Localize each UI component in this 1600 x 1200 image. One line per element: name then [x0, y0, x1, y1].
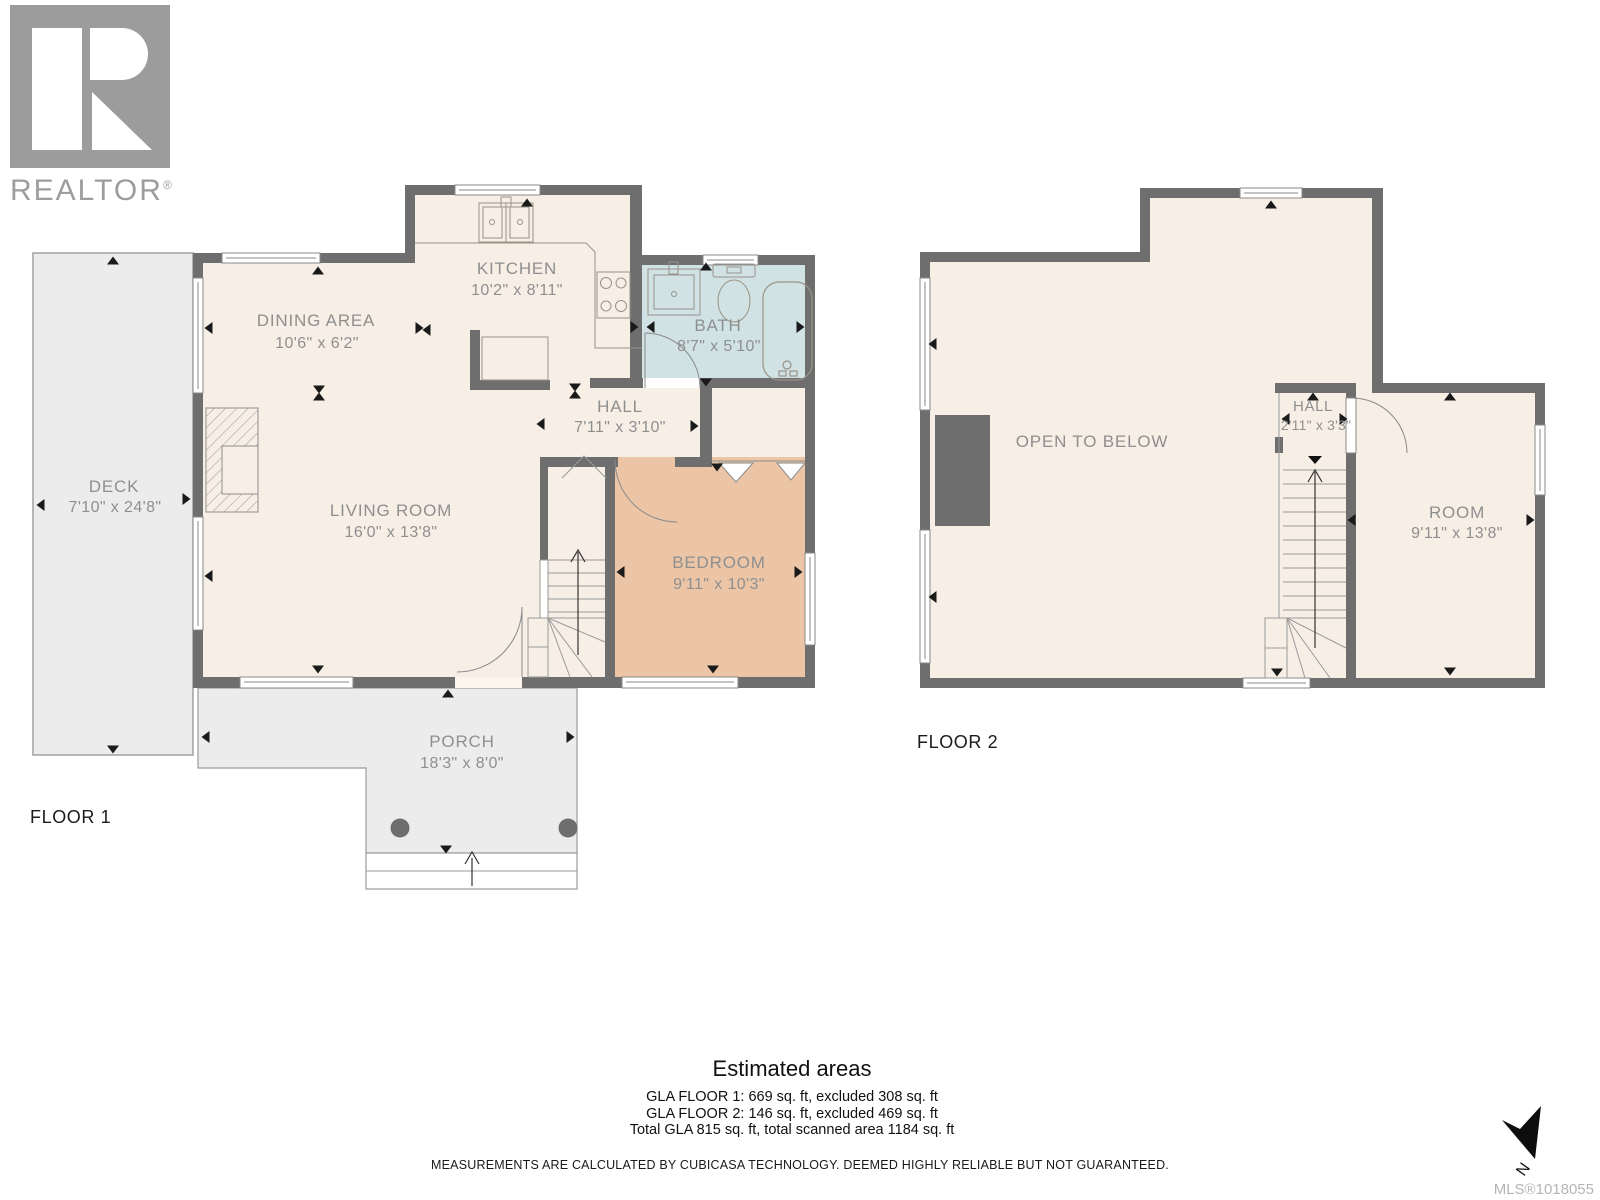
front-door-opening: [455, 677, 522, 688]
room-label: ROOM: [1429, 503, 1485, 522]
gla-floor2-line: GLA FLOOR 2: 146 sq. ft, excluded 469 sq…: [392, 1106, 1192, 1123]
hall2-label: HALL: [1293, 398, 1333, 415]
dining-label: DINING AREA: [257, 311, 375, 330]
dining-dims: 10'6" x 6'2": [275, 335, 359, 352]
disclaimer-text: MEASUREMENTS ARE CALCULATED BY CUBICASA …: [300, 1158, 1300, 1172]
hall-dims: 7'11" x 3'10": [574, 419, 666, 436]
hall-label: HALL: [597, 397, 643, 416]
floor2-title: FLOOR 2: [917, 732, 998, 752]
bump-floor: [1150, 198, 1372, 262]
open-to-below-label: OPEN TO BELOW: [1016, 432, 1168, 451]
estimated-areas: Estimated areas GLA FLOOR 1: 669 sq. ft,…: [392, 1056, 1192, 1139]
floor2-plan: OPEN TO BELOW HALL 2'11" x 3'3" ROOM 9'1…: [917, 188, 1545, 752]
porch-label: PORCH: [429, 732, 494, 751]
mls-number: MLS®1018055: [1494, 1181, 1594, 1198]
north-compass: N: [1502, 1106, 1541, 1179]
porch-dims: 18'3" x 8'0": [420, 755, 504, 772]
hall2-dims: 2'11" x 3'3": [1281, 417, 1351, 433]
estimated-areas-title: Estimated areas: [392, 1056, 1192, 1082]
bedroom-dims: 9'11" x 10'3": [673, 576, 765, 593]
living-room-dims: 16'0" x 13'8": [345, 524, 438, 541]
porch-area: [198, 688, 577, 853]
room-dims: 9'11" x 13'8": [1411, 525, 1503, 542]
gla-floor1-line: GLA FLOOR 1: 669 sq. ft, excluded 308 sq…: [392, 1089, 1192, 1106]
floor1-title: FLOOR 1: [30, 807, 111, 827]
north-arrow-icon: [1502, 1106, 1541, 1159]
bedroom-label: BEDROOM: [672, 553, 765, 572]
floor1-plan: KITCHEN 10'2" x 8'11" DINING AREA 10'6" …: [30, 185, 815, 889]
deck-label: DECK: [89, 477, 139, 496]
kitchen-dims: 10'2" x 8'11": [471, 282, 563, 299]
kitchen-label: KITCHEN: [477, 259, 557, 278]
living-room-label: LIVING ROOM: [330, 501, 452, 520]
bath-dims: 8'7" x 5'10": [677, 338, 761, 355]
chimney: [935, 415, 990, 526]
registered-mark: ®: [163, 178, 172, 192]
floor-plan-canvas: KITCHEN 10'2" x 8'11" DINING AREA 10'6" …: [0, 0, 1600, 1200]
deck-dims: 7'10" x 24'8": [69, 499, 162, 516]
gla-total-line: Total GLA 815 sq. ft, total scanned area…: [392, 1122, 1192, 1139]
porch-post: [391, 819, 410, 838]
realtor-brand-text: REALTOR: [10, 174, 163, 207]
porch-post: [559, 819, 578, 838]
realtor-logo: [10, 5, 170, 168]
fireplace: [206, 408, 258, 512]
realtor-wordmark: REALTOR®: [10, 174, 186, 208]
north-label: N: [1513, 1160, 1534, 1179]
bath-label: BATH: [694, 316, 741, 335]
